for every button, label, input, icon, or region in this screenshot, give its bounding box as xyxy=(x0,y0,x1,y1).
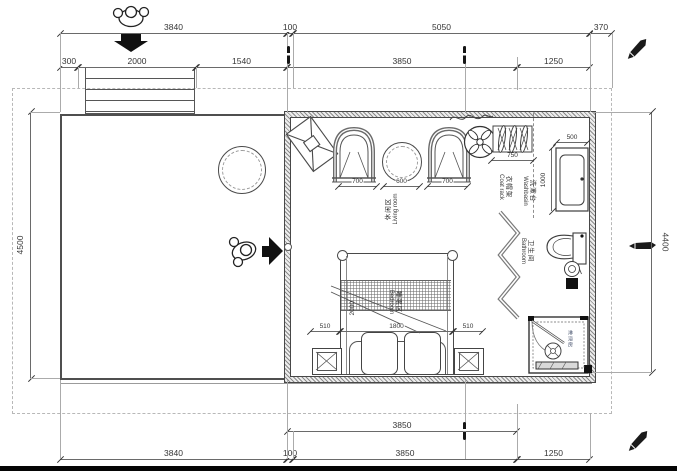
extension-line xyxy=(30,378,60,379)
sheet-edge xyxy=(0,466,677,471)
pillow xyxy=(404,332,441,375)
extension-line xyxy=(287,380,288,459)
dim-label: 700 xyxy=(351,179,364,186)
extension-line xyxy=(592,112,651,113)
dim-bottom2-1250: 1250 xyxy=(517,459,590,460)
level-pole-icon xyxy=(463,422,466,440)
dim-bottom2-3850: 3850 xyxy=(293,459,517,460)
extension-line xyxy=(590,413,591,459)
dim-top-3840: 3840 xyxy=(60,33,287,34)
bed-frame-line xyxy=(447,256,448,374)
dim-top2-1540: 1540 xyxy=(196,67,287,68)
living-round-table-inner xyxy=(386,146,418,178)
stairs xyxy=(85,67,195,114)
washbasin-label-zh: 洗漱台 xyxy=(528,176,536,205)
bedroom-label-zh: 睡眠区 xyxy=(394,290,402,314)
bedside-table xyxy=(312,348,342,375)
living-room-label: 休闲区 Living room xyxy=(385,193,401,224)
dim-label: 1540 xyxy=(231,57,252,66)
dim-label: 600 xyxy=(395,179,408,186)
bedside-table xyxy=(454,348,484,375)
bathroom-label-en: Bathroom xyxy=(518,238,526,264)
coat-rack-label: 衣帽架 Coat rack xyxy=(496,174,512,200)
dim-top2-300: 300 xyxy=(60,67,78,68)
dim-label: 3840 xyxy=(163,23,184,32)
living-room-label-en: Living room xyxy=(393,193,401,224)
dim-chair-700: 700 xyxy=(427,186,468,187)
deck-round-table-inner xyxy=(222,150,262,190)
dim-rack-750: 750 xyxy=(491,160,534,161)
dim-top2-1250: 1250 xyxy=(517,67,590,68)
dim-label: 5050 xyxy=(431,23,452,32)
extension-line xyxy=(196,67,197,88)
pen-marker-icon xyxy=(626,429,650,453)
bedside-table-inner xyxy=(459,352,479,371)
dim-basin-500: 500 xyxy=(556,142,588,143)
extension-line xyxy=(293,33,294,88)
dim-label: 2000 xyxy=(127,57,148,66)
bedroom-label: 睡眠区 Bedroom xyxy=(386,290,402,314)
dim-label: 3850 xyxy=(395,449,416,458)
dim-label: 700 xyxy=(441,179,454,186)
dim-table-600: 600 xyxy=(383,186,420,187)
pen-marker-icon xyxy=(625,37,649,61)
extension-line xyxy=(612,33,613,88)
bed-corner-scroll xyxy=(447,250,458,261)
plinth-line xyxy=(60,383,592,384)
extension-line xyxy=(78,67,79,88)
dim-bottom2-3840: 3840 xyxy=(60,459,287,460)
dim-chair-700: 700 xyxy=(338,186,377,187)
dim-bed-510: 510 xyxy=(310,331,340,332)
extension-line xyxy=(60,380,61,459)
bathroom-label-zh: 卫生间 xyxy=(526,238,534,264)
bedroom-label-en: Bedroom xyxy=(386,290,394,314)
level-pole-icon xyxy=(463,46,466,64)
extension-line xyxy=(293,431,294,459)
dim-label: 300 xyxy=(61,57,77,66)
extension-line xyxy=(465,380,466,459)
bed-frame-line xyxy=(346,256,347,374)
shower-label: 淋浴房 xyxy=(567,330,572,348)
pillow xyxy=(361,332,398,375)
washbasin-label: 洗漱台 Washbasin xyxy=(520,176,536,205)
dim-label: 4500 xyxy=(16,235,25,256)
dim-bottom1-3850: 3850 xyxy=(287,431,517,432)
dim-label: 1250 xyxy=(543,57,564,66)
dim-right-4400: 4400 xyxy=(651,112,652,372)
extension-line xyxy=(60,33,61,112)
person-top-view-icon xyxy=(114,7,149,53)
dim-label: 3840 xyxy=(163,449,184,458)
dim-left-4500: 4500 xyxy=(30,112,31,378)
extension-line xyxy=(517,404,518,459)
dim-top-370: 370 xyxy=(590,33,612,34)
dim-label: 3850 xyxy=(392,57,413,66)
bedside-table-inner xyxy=(317,352,337,371)
coat-rack-label-en: Coat rack xyxy=(496,174,504,200)
bathroom-label: 卫生间 Bathroom xyxy=(518,238,534,264)
washbasin-label-en: Washbasin xyxy=(520,176,528,205)
dim-label: 4400 xyxy=(661,232,670,253)
dim-label: 510 xyxy=(462,324,475,331)
dim-label: 370 xyxy=(593,23,609,32)
level-pole-icon xyxy=(287,46,290,64)
extension-line xyxy=(30,112,60,113)
dim-label: 510 xyxy=(319,324,332,331)
dim-label: 500 xyxy=(566,135,579,142)
coat-rack-label-zh: 衣帽架 xyxy=(504,174,512,200)
dim-label: 3850 xyxy=(392,421,413,430)
dim-label: 1000 xyxy=(541,171,548,187)
extension-line xyxy=(590,33,591,112)
door-knob-icon xyxy=(284,243,292,251)
extension-line xyxy=(592,372,651,373)
dim-bed-2000: 2000 xyxy=(350,300,357,316)
extension-line xyxy=(517,57,518,90)
dim-bed-1800: 1800 xyxy=(340,331,453,332)
floor-plan-canvas: 3840 100 5050 370 300 2000 1540 3850 125… xyxy=(0,0,677,473)
down-arrow-icon xyxy=(114,33,148,52)
extension-line xyxy=(287,33,288,112)
dim-label: 1250 xyxy=(543,449,564,458)
living-room-label-zh: 休闲区 xyxy=(385,193,393,224)
dim-label: 750 xyxy=(506,153,519,160)
dim-top2-2000: 2000 xyxy=(78,67,196,68)
dim-bed-510: 510 xyxy=(453,331,483,332)
dim-basin-1000: 1000 xyxy=(551,148,552,211)
dim-label: 1800 xyxy=(388,324,404,331)
dim-top-5050: 5050 xyxy=(293,33,590,34)
dim-top2-3850: 3850 xyxy=(287,67,517,68)
